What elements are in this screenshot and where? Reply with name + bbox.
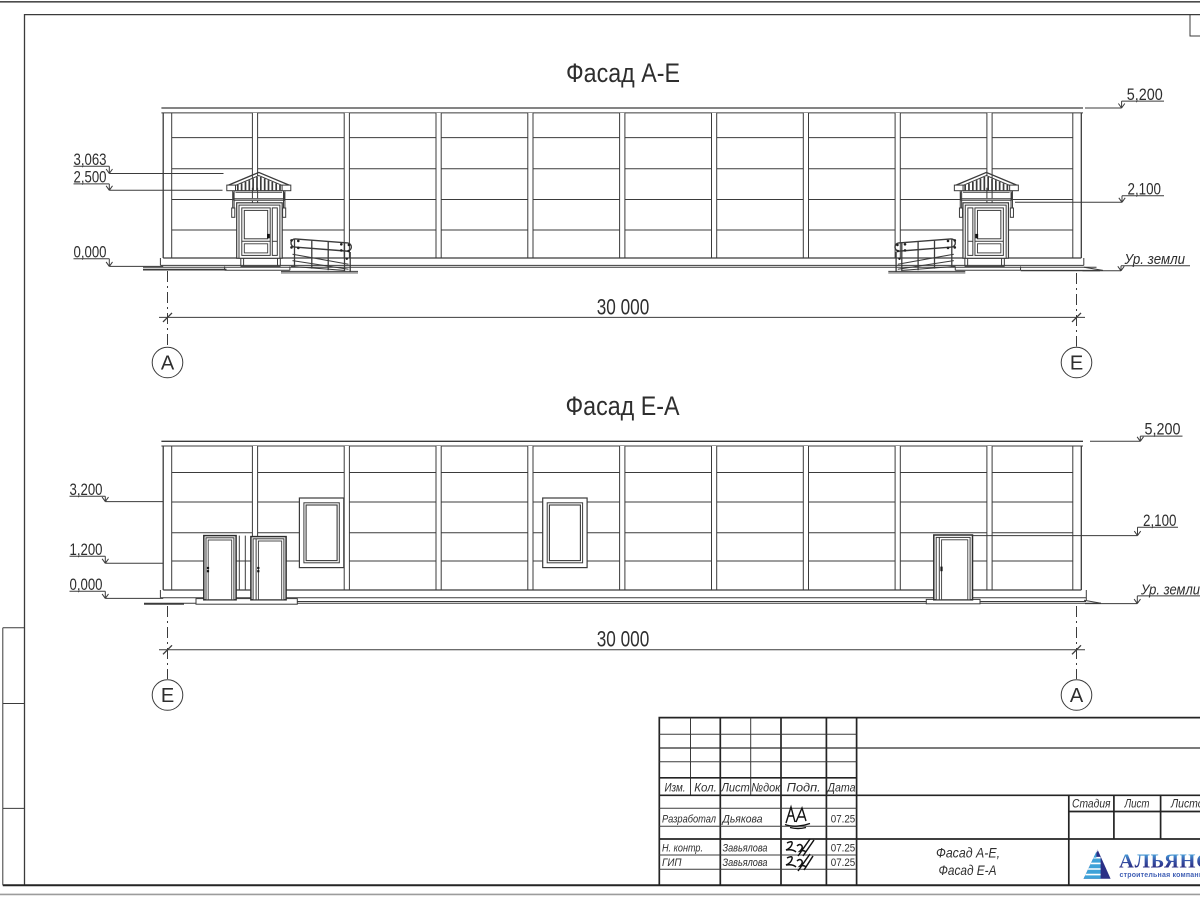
svg-text:Фасад Е-А: Фасад Е-А [566, 391, 680, 421]
svg-text:07.25: 07.25 [831, 843, 856, 855]
svg-text:Стадия: Стадия [1072, 797, 1111, 811]
svg-text:Подп.: Подп. [787, 780, 821, 794]
svg-text:Изм.: Изм. [665, 780, 686, 794]
svg-text:Завьялова: Завьялова [723, 843, 768, 855]
svg-text:Дата: Дата [826, 780, 856, 794]
svg-text:№док: №док [751, 780, 781, 794]
svg-text:30 000: 30 000 [597, 295, 650, 320]
svg-text:Лист: Лист [720, 780, 749, 794]
svg-text:Н. контр.: Н. контр. [662, 843, 703, 855]
svg-text:Дьякова: Дьякова [722, 814, 763, 826]
svg-text:30 000: 30 000 [597, 627, 650, 652]
svg-text:07.25: 07.25 [831, 857, 856, 869]
svg-text:Фасад А-Е: Фасад А-Е [566, 58, 680, 88]
svg-text:строительная компания: строительная компания [1120, 872, 1200, 879]
svg-text:А: А [1070, 685, 1084, 707]
svg-text:А: А [161, 353, 175, 375]
svg-text:Разработал: Разработал [662, 814, 716, 826]
svg-text:АЛЬЯНС: АЛЬЯНС [1119, 850, 1200, 872]
svg-text:Фасад Е-А: Фасад Е-А [939, 862, 997, 878]
svg-text:ГИП: ГИП [662, 857, 682, 869]
svg-text:Завьялова: Завьялова [723, 857, 768, 869]
svg-text:Листов: Листов [1170, 797, 1200, 811]
svg-text:Фасад А-Е,: Фасад А-Е, [936, 845, 1000, 861]
svg-text:Кол.: Кол. [694, 780, 717, 794]
svg-text:Лист: Лист [1124, 797, 1150, 811]
svg-text:Е: Е [161, 685, 174, 707]
svg-text:07.25: 07.25 [831, 814, 856, 826]
svg-text:Е: Е [1070, 353, 1083, 375]
